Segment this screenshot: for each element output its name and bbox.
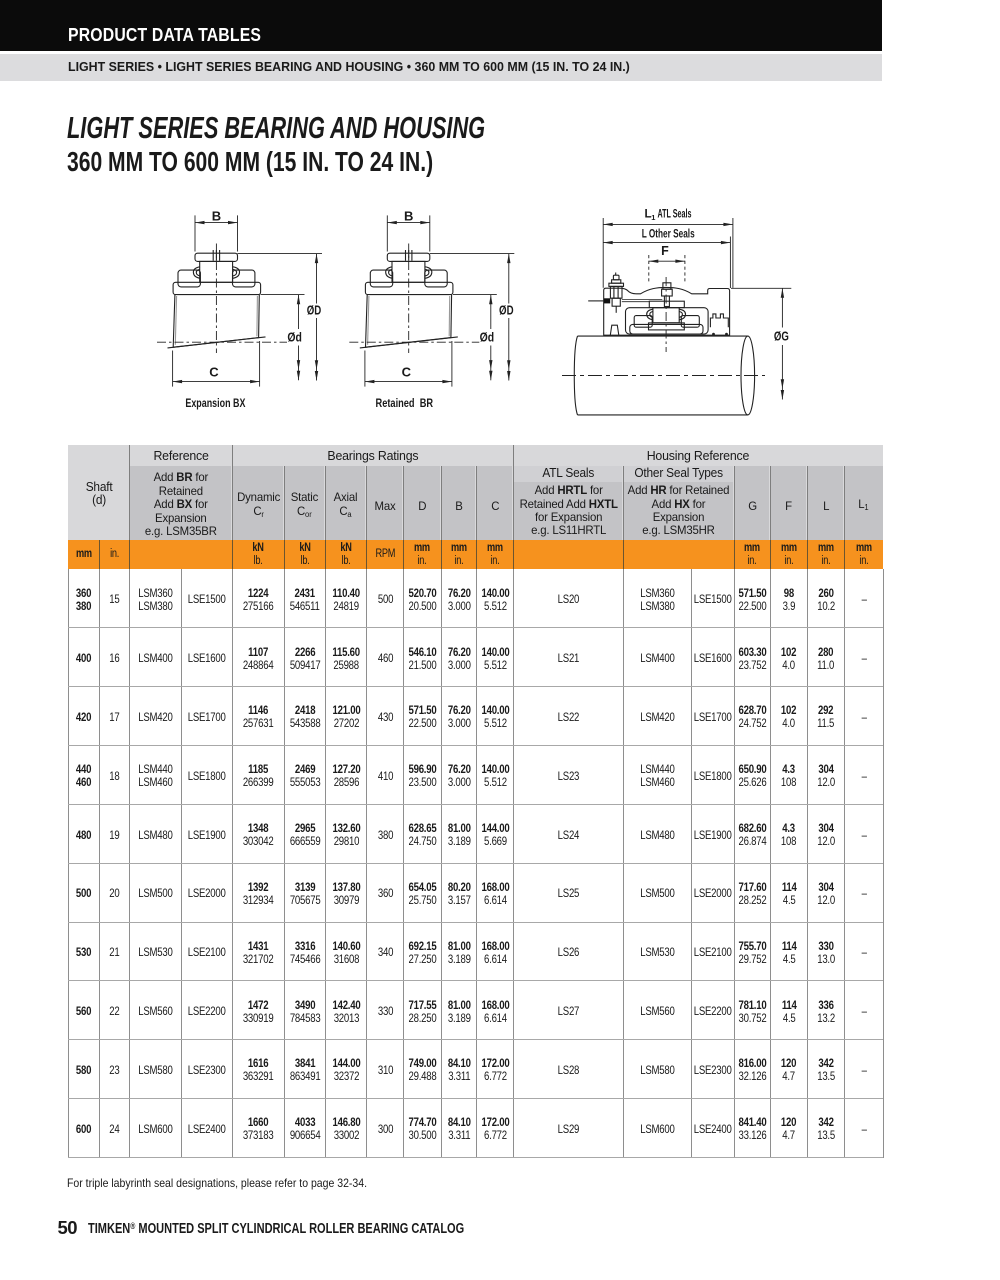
- svg-text:B: B: [404, 208, 413, 223]
- svg-text:Ød: Ød: [480, 331, 495, 345]
- svg-text:C: C: [402, 364, 412, 379]
- svg-text:ØD: ØD: [499, 303, 514, 317]
- svg-text:Ød: Ød: [287, 331, 302, 345]
- svg-text:ATL Seals: ATL Seals: [658, 208, 692, 220]
- svg-text:B: B: [212, 208, 221, 223]
- svg-text:C: C: [209, 364, 219, 379]
- svg-text:1: 1: [651, 213, 655, 222]
- svg-text:Expansion BX: Expansion BX: [185, 396, 245, 410]
- svg-text:ØG: ØG: [774, 330, 789, 344]
- svg-text:Retained BR: Retained BR: [376, 396, 434, 410]
- svg-text:L Other Seals: L Other Seals: [642, 229, 695, 241]
- svg-text:F: F: [661, 244, 669, 258]
- svg-text:ØD: ØD: [307, 303, 322, 317]
